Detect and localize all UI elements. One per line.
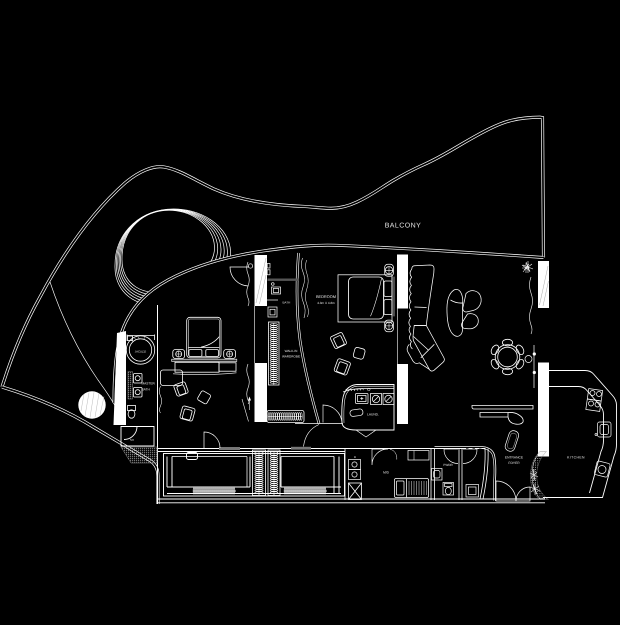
svg-text:KITCHEN: KITCHEN [567,456,585,460]
svg-text:LAUND.: LAUND. [367,413,379,417]
svg-text:JACUZZI: JACUZZI [135,350,147,354]
svg-text:BATH: BATH [142,388,151,392]
svg-text:ENTRANCE: ENTRANCE [505,456,524,460]
svg-text:SH: SH [130,438,134,442]
svg-text:BALCONY: BALCONY [385,223,422,230]
svg-text:MASTER: MASTER [142,382,156,386]
svg-text:WALK-IN: WALK-IN [285,349,298,353]
svg-text:FOYER: FOYER [508,461,520,465]
svg-text:PWDR: PWDR [443,463,453,467]
svg-text:BATH: BATH [283,301,291,305]
svg-text:M/D: M/D [383,471,390,475]
svg-text:4.3m X 4.8m: 4.3m X 4.8m [317,301,335,305]
svg-text:BEDROOM: BEDROOM [316,294,336,299]
svg-text:WARDROBE: WARDROBE [282,355,300,359]
